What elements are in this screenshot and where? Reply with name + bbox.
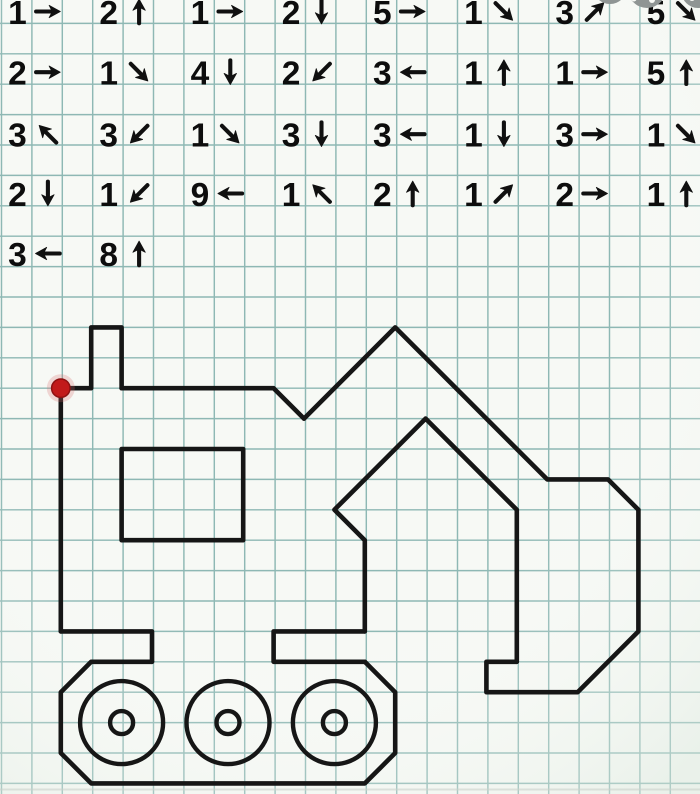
svg-text:1: 1 <box>464 177 483 214</box>
svg-text:3: 3 <box>8 237 27 274</box>
svg-text:1: 1 <box>647 118 666 155</box>
svg-text:1: 1 <box>191 118 210 155</box>
svg-text:8: 8 <box>99 237 118 274</box>
svg-text:3: 3 <box>8 118 27 155</box>
svg-text:1: 1 <box>464 56 483 93</box>
svg-text:9: 9 <box>191 177 210 214</box>
svg-text:1: 1 <box>464 118 483 155</box>
svg-text:3: 3 <box>282 118 301 155</box>
svg-text:3: 3 <box>373 56 392 93</box>
svg-text:3: 3 <box>555 118 574 155</box>
svg-text:1: 1 <box>464 0 483 32</box>
svg-text:1: 1 <box>99 177 118 214</box>
svg-text:5: 5 <box>373 0 392 32</box>
svg-text:2: 2 <box>8 177 27 214</box>
svg-text:1: 1 <box>99 56 118 93</box>
svg-text:3: 3 <box>99 118 118 155</box>
svg-text:4: 4 <box>191 56 210 93</box>
svg-text:2: 2 <box>282 56 301 93</box>
svg-text:2: 2 <box>99 0 118 32</box>
svg-text:2: 2 <box>373 177 392 214</box>
svg-text:2: 2 <box>555 177 574 214</box>
svg-text:3: 3 <box>373 118 392 155</box>
svg-text:1: 1 <box>282 177 301 214</box>
svg-text:1: 1 <box>191 0 210 32</box>
svg-text:1: 1 <box>8 0 27 32</box>
svg-text:5: 5 <box>647 56 666 93</box>
svg-text:1: 1 <box>555 56 574 93</box>
svg-text:1: 1 <box>647 177 666 214</box>
svg-text:2: 2 <box>8 56 27 93</box>
svg-text:2: 2 <box>282 0 301 32</box>
svg-text:3: 3 <box>555 0 574 32</box>
